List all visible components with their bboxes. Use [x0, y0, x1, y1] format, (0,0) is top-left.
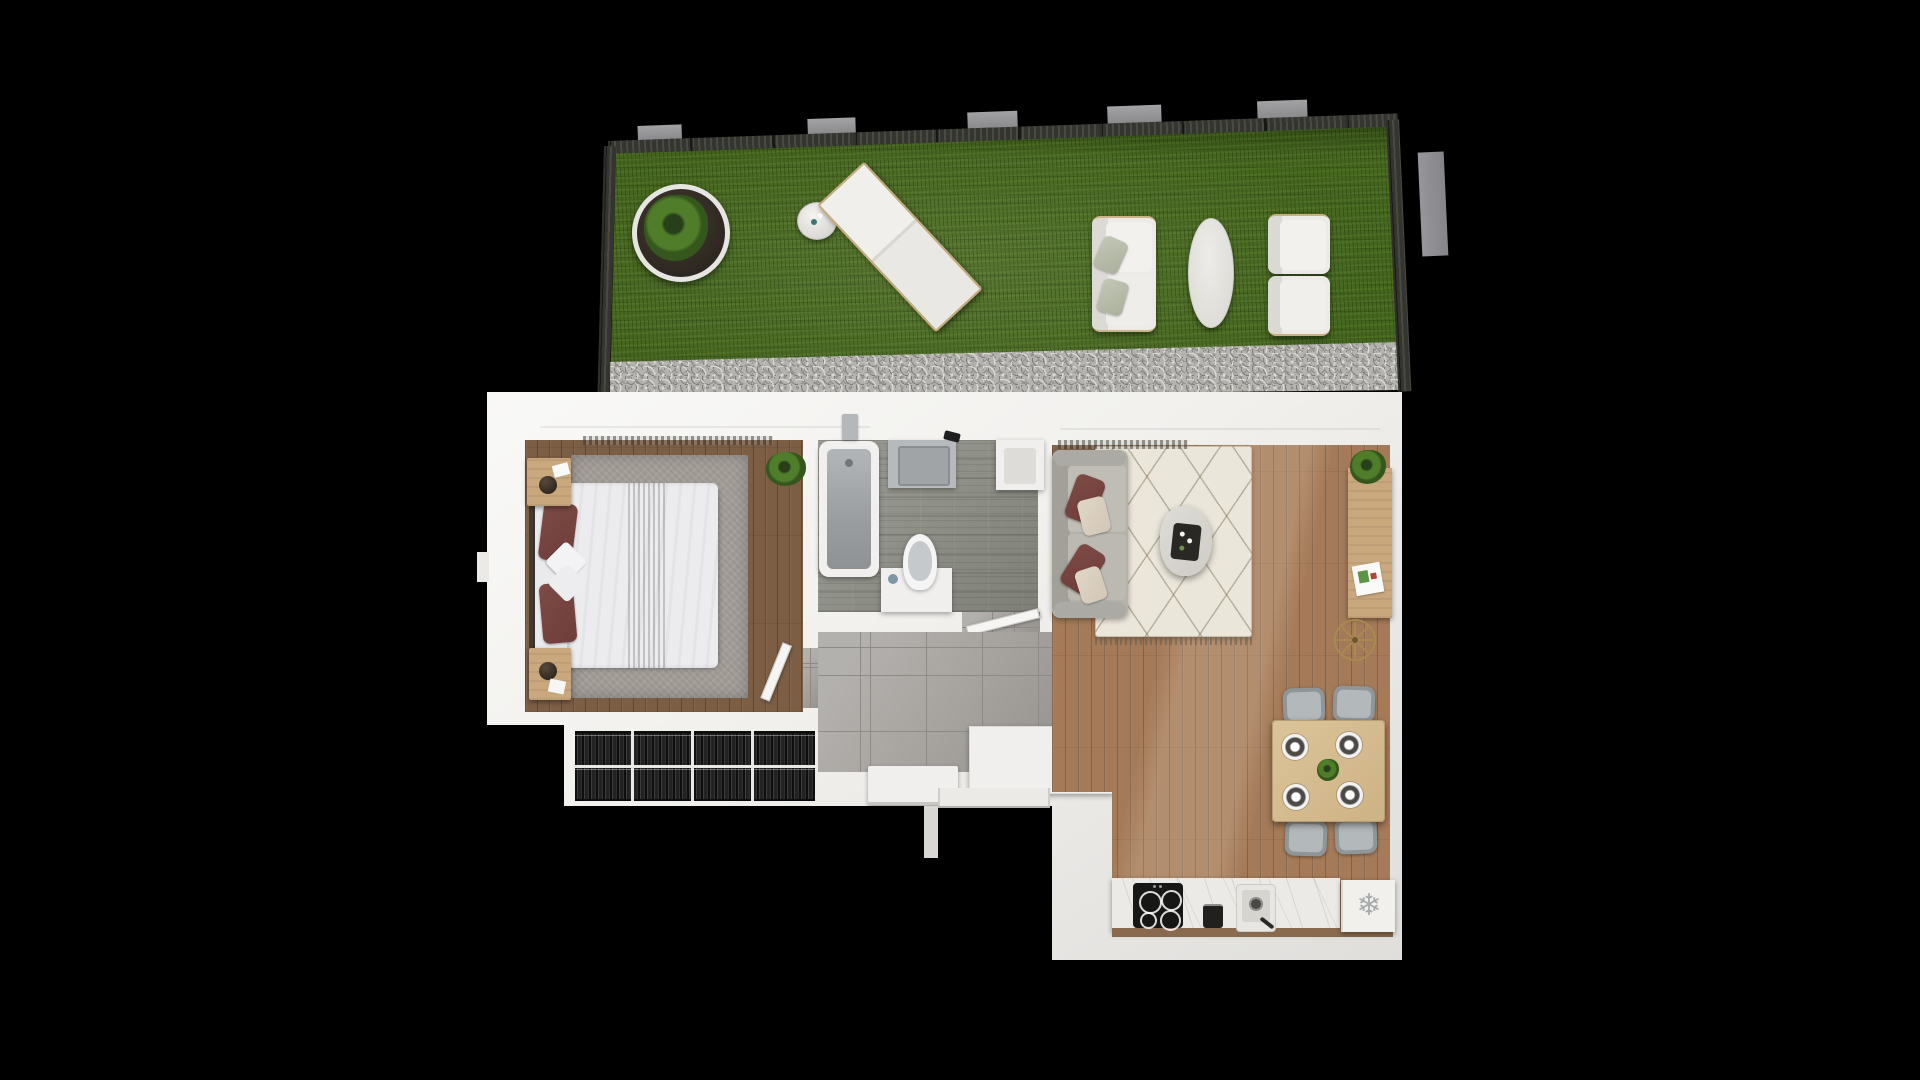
floor-plan-stage: ❄ [0, 0, 1920, 1080]
chair-cushion [1289, 823, 1324, 852]
induction-cooktop [1133, 883, 1183, 928]
plant-foliage [644, 195, 708, 261]
dining-chair [1332, 685, 1375, 722]
paper-item [552, 462, 571, 478]
bedroom-wardrobe [575, 731, 815, 801]
magazine-art [1358, 570, 1370, 584]
front-door [938, 788, 1050, 808]
table-lamp [539, 476, 557, 494]
clock-hub [1352, 637, 1358, 643]
chair-cushion [1287, 691, 1322, 720]
neighbour-divider-wall [1418, 151, 1449, 256]
bathtub [819, 441, 879, 577]
bathroom-cabinet [996, 440, 1044, 490]
nightstand [529, 648, 571, 700]
dining-chair [1334, 817, 1377, 854]
cooktop-burner [1161, 890, 1182, 911]
bathtub-basin [827, 449, 871, 569]
armchair-cushion [1280, 280, 1326, 330]
nightstand [527, 458, 571, 506]
place-setting-plate [1336, 732, 1362, 758]
paper-item [548, 678, 566, 694]
dining-chair [1284, 819, 1327, 856]
wardrobe-clothes-rail [575, 768, 815, 799]
washer-drum [898, 446, 950, 486]
magazine [1352, 562, 1385, 596]
fence-post-cap [637, 124, 681, 140]
place-setting-plate [1283, 784, 1309, 810]
toilet-brush [888, 574, 898, 584]
toilet [903, 534, 937, 590]
coffee-machine [1203, 904, 1223, 928]
tray-flower [1187, 538, 1192, 543]
garden-sofa [1092, 216, 1156, 332]
cooktop-burner [1160, 910, 1181, 931]
sofa-armrest [1054, 602, 1126, 618]
cooktop-control [1159, 885, 1162, 888]
toilet-lid [908, 541, 932, 581]
wardrobe-divider [575, 765, 815, 768]
table-decor-dot [811, 219, 817, 225]
snowflake-icon: ❄ [1343, 880, 1395, 932]
table-centerpiece [1317, 759, 1339, 781]
garden-potted-plant [632, 184, 730, 282]
fence-post-cap [1107, 105, 1162, 124]
table-decor-dot [818, 213, 823, 218]
bathtub-drain [845, 459, 853, 467]
cooktop-control [1153, 885, 1156, 888]
tray-flower [1179, 545, 1184, 550]
dining-table [1272, 720, 1385, 822]
coffee-table [1160, 506, 1212, 576]
front-door-jamb [924, 806, 938, 858]
cooktop-burner [1139, 891, 1162, 914]
washer-unit [888, 440, 956, 488]
tray-flower [1180, 531, 1185, 536]
terrace-door-seam [540, 426, 870, 428]
place-setting-plate [1282, 734, 1308, 760]
terrace-door-seam [1060, 428, 1380, 430]
garden-oval-table [1188, 218, 1234, 328]
living-room-sofa [1052, 450, 1128, 618]
fence-post-cap [807, 117, 855, 134]
chair-cushion [1339, 821, 1374, 850]
exterior-pillar [477, 552, 489, 582]
fence-post-cap [1257, 100, 1308, 119]
garden-armchair [1268, 276, 1330, 336]
kitchen-sink [1236, 884, 1276, 932]
bedroom-curtain [583, 436, 773, 445]
place-setting-plate [1337, 782, 1363, 808]
cabinet-top-inset [1004, 448, 1036, 484]
chair-cushion [1337, 689, 1372, 718]
bedroom-bed [529, 483, 719, 668]
wardrobe-clothes-rail [575, 734, 815, 765]
living-room-curtain [1058, 440, 1188, 449]
table-lamp [539, 662, 557, 680]
shower-fitting [842, 414, 858, 440]
freezer: ❄ [1341, 880, 1395, 932]
garden-armchair [1268, 214, 1330, 274]
sink-drain [1249, 897, 1263, 911]
magazine-art [1370, 573, 1377, 580]
spoke-wall-clock [1334, 619, 1376, 661]
sideboard [1348, 468, 1392, 618]
bedroom-door-threshold [803, 648, 818, 708]
cooktop-burner [1140, 912, 1157, 929]
armchair-cushion [1280, 220, 1326, 270]
fence-post-cap [967, 111, 1018, 129]
sofa-armrest [1054, 450, 1126, 466]
bed-runner-blanket [628, 483, 668, 668]
coffee-table-tray [1170, 523, 1202, 562]
